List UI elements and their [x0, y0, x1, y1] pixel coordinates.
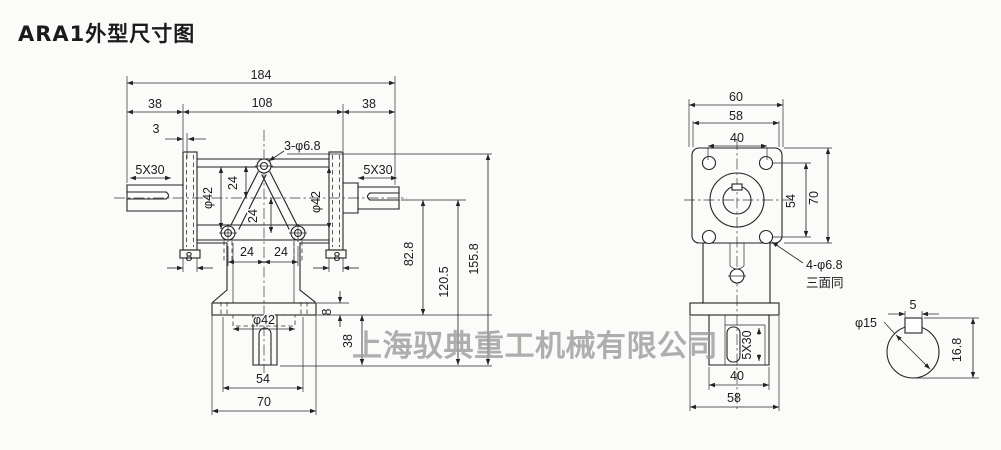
dimension-drawing: ARA1外型尺寸图 [0, 0, 1001, 450]
side-dimension-texts: 60 58 40 54 70 4-φ6.8 三面同 5X30 40 58 [727, 90, 843, 405]
flange-hole-tr [760, 157, 773, 170]
side-hole-note: 三面同 [806, 275, 844, 290]
dim-keyway-left: 5X30 [135, 163, 164, 177]
dim-top-to-shaft-end: 155.8 [467, 243, 481, 274]
dim-hole-pitch-h: 40 [730, 131, 744, 145]
front-extension-lines [127, 76, 492, 415]
dim-bottom-pitch-left: 24 [240, 245, 254, 259]
side-bottom-flange [690, 303, 779, 315]
dim-body-width: 108 [252, 96, 273, 110]
drawing-canvas: ARA1外型尺寸图 [0, 0, 1001, 450]
side-hole-leader [772, 242, 803, 263]
dim-foot-width: 40 [730, 369, 744, 383]
dim-bolt-circle-right: φ42 [309, 191, 323, 213]
shaft-section-detail: 5 φ15 16.8 [855, 298, 979, 378]
dim-left-shaft-ext: 38 [148, 97, 162, 111]
mount-hole-callout: 3-φ6.8 [284, 139, 321, 153]
dim-flange-height: 70 [807, 191, 821, 205]
dim-axis-to-flange-bottom: 82.8 [402, 242, 416, 266]
dim-flange-face-offset: 3 [153, 122, 160, 136]
dim-overall-width: 184 [251, 68, 272, 82]
dim-overall-depth: 60 [729, 90, 743, 104]
side-hole-callout: 4-φ6.8 [806, 258, 843, 272]
dim-output-flange-thickness: 8 [320, 308, 334, 315]
dim-bottom-flange-depth: 58 [727, 391, 741, 405]
dim-hole-pitch-v: 54 [784, 194, 798, 208]
dim-flange-side: 58 [729, 109, 743, 123]
flange-hole-bl [703, 231, 716, 244]
dim-output-bolt-pitch: 54 [256, 372, 270, 386]
flange-hole-tl [703, 157, 716, 170]
right-side-flange [329, 152, 343, 250]
dim-top-hole-to-axis: 24 [226, 176, 240, 190]
dim-bolt-circle-left: φ42 [201, 187, 215, 209]
side-keyway-slot [727, 327, 740, 362]
dim-key-width: 5 [910, 298, 917, 312]
dim-output-spigot-dia: φ42 [253, 313, 275, 327]
page-title: ARA1外型尺寸图 [18, 22, 195, 46]
key [905, 318, 922, 333]
dim-axis-to-bottom-holes: 24 [246, 209, 260, 223]
dim-overall-height: 16.8 [950, 338, 964, 362]
company-watermark: 上海驭典重工机械有限公司 [352, 329, 718, 364]
output-keyway-slot [259, 328, 271, 365]
dim-left-flange-thickness: 8 [186, 250, 193, 264]
dim-right-flange-thickness: 8 [334, 250, 341, 264]
dim-axis-to-shaft-end: 120.5 [437, 266, 451, 297]
left-side-flange [183, 152, 197, 250]
dim-output-keyway: 5X30 [740, 330, 754, 359]
dim-keyway-right: 5X30 [363, 163, 392, 177]
dim-output-flange-width: 70 [257, 395, 271, 409]
dim-bottom-pitch-right: 24 [274, 245, 288, 259]
dim-right-shaft-ext: 38 [362, 97, 376, 111]
flange-hole-br [760, 231, 773, 244]
dim-shaft-dia: φ15 [855, 316, 877, 330]
bore-keyway [732, 184, 742, 190]
